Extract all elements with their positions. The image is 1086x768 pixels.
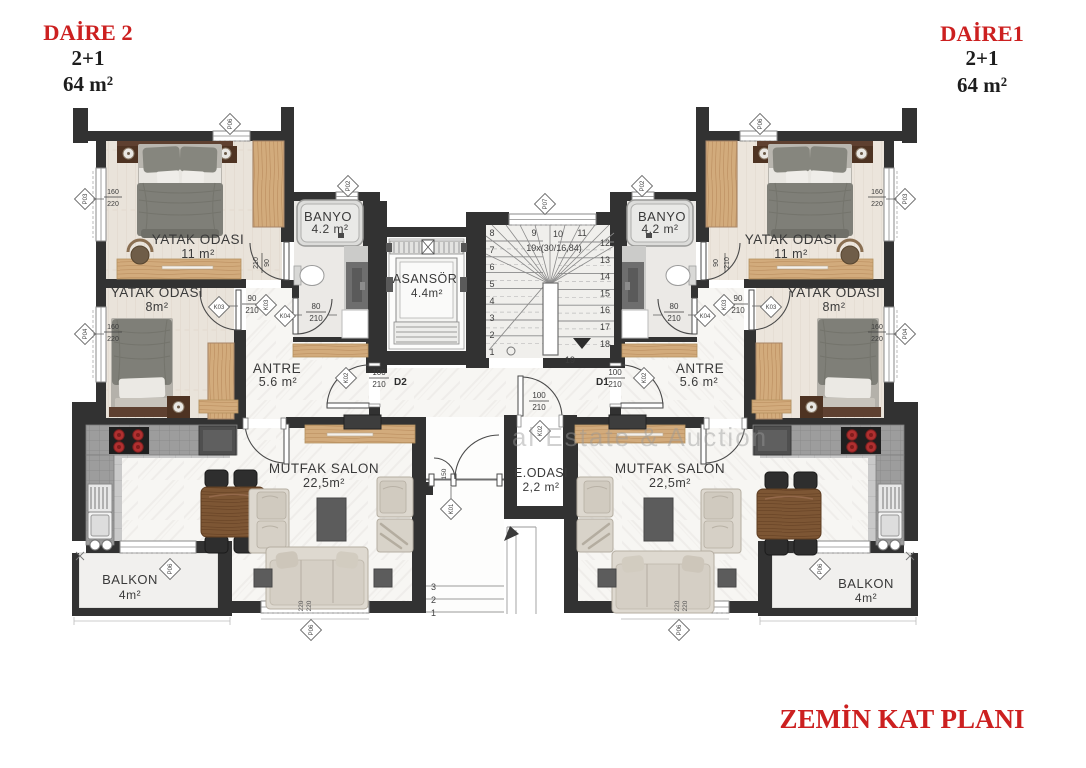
- svg-text:P06: P06: [168, 563, 174, 574]
- svg-text:90: 90: [264, 259, 271, 267]
- svg-text:ASANSÖR: ASANSÖR: [393, 272, 458, 286]
- svg-text:160: 160: [107, 189, 119, 196]
- svg-text:210: 210: [667, 314, 681, 323]
- svg-text:160: 160: [871, 324, 883, 331]
- svg-text:210: 210: [372, 380, 386, 389]
- svg-text:90: 90: [713, 259, 720, 267]
- svg-text:220: 220: [306, 600, 313, 611]
- svg-text:K03: K03: [264, 299, 270, 310]
- svg-text:210: 210: [245, 306, 259, 315]
- svg-text:D2: D2: [394, 377, 407, 388]
- svg-text:YATAK ODASI: YATAK ODASI: [745, 232, 838, 247]
- svg-text:6: 6: [489, 262, 494, 272]
- svg-text:160: 160: [107, 324, 119, 331]
- svg-text:22,5m²: 22,5m²: [649, 476, 691, 490]
- svg-text:8m²: 8m²: [145, 300, 168, 314]
- svg-text:P04: P04: [903, 328, 909, 339]
- svg-text:4: 4: [489, 296, 494, 306]
- svg-text:K03: K03: [766, 305, 777, 311]
- svg-text:210: 210: [532, 403, 546, 412]
- svg-text:ZEMİN KAT PLANI: ZEMİN KAT PLANI: [779, 704, 1024, 734]
- svg-text:13: 13: [600, 255, 610, 265]
- svg-text:P06: P06: [677, 624, 683, 635]
- svg-text:P03: P03: [903, 193, 909, 204]
- svg-text:P07: P07: [543, 198, 549, 209]
- svg-text:YATAK ODASI: YATAK ODASI: [111, 285, 204, 300]
- svg-text:7: 7: [489, 245, 494, 255]
- svg-text:5.6 m²: 5.6 m²: [259, 375, 297, 389]
- svg-text:2,2 m²: 2,2 m²: [522, 480, 559, 494]
- svg-text:P04: P04: [83, 328, 89, 339]
- svg-text:K02: K02: [642, 372, 648, 383]
- svg-text:P06: P06: [309, 624, 315, 635]
- svg-text:5.6 m²: 5.6 m²: [680, 375, 718, 389]
- svg-text:22,5m²: 22,5m²: [303, 476, 345, 490]
- svg-text:220: 220: [682, 600, 689, 611]
- svg-text:DAİRE 2: DAİRE 2: [43, 20, 132, 45]
- svg-text:80: 80: [312, 302, 321, 311]
- svg-text:K03: K03: [722, 299, 728, 310]
- svg-text:10: 10: [553, 229, 563, 239]
- svg-text:220: 220: [871, 201, 883, 208]
- svg-text:100: 100: [532, 391, 546, 400]
- svg-text:2+1: 2+1: [72, 46, 105, 70]
- svg-text:1: 1: [431, 608, 436, 618]
- svg-text:15: 15: [600, 288, 610, 298]
- svg-text:P06: P06: [818, 563, 824, 574]
- svg-text:19x(30/16,84): 19x(30/16,84): [526, 243, 582, 253]
- svg-text:BALKON: BALKON: [838, 576, 894, 591]
- svg-text:220: 220: [107, 201, 119, 208]
- svg-text:16: 16: [600, 305, 610, 315]
- svg-text:80: 80: [670, 302, 679, 311]
- svg-text:2: 2: [431, 595, 436, 605]
- svg-text:YATAK ODASI: YATAK ODASI: [788, 285, 881, 300]
- svg-text:4.2 m²: 4.2 m²: [311, 222, 348, 236]
- svg-text:90: 90: [734, 294, 743, 303]
- svg-text:9: 9: [531, 228, 536, 238]
- svg-text:100: 100: [372, 368, 386, 377]
- svg-text:4.4m²: 4.4m²: [411, 288, 443, 300]
- svg-text:3: 3: [431, 582, 436, 592]
- svg-text:5: 5: [489, 279, 494, 289]
- svg-text:11 m²: 11 m²: [774, 247, 808, 261]
- svg-text:K02: K02: [344, 372, 350, 383]
- svg-text:3: 3: [489, 313, 494, 323]
- svg-text:P06: P06: [228, 118, 234, 129]
- svg-text:YATAK ODASI: YATAK ODASI: [152, 232, 245, 247]
- svg-text:2: 2: [489, 330, 494, 340]
- svg-text:4m²: 4m²: [119, 588, 141, 602]
- svg-text:19: 19: [565, 355, 575, 365]
- svg-text:MUTFAK SALON: MUTFAK SALON: [615, 461, 725, 476]
- svg-text:210: 210: [253, 257, 260, 269]
- svg-text:220: 220: [107, 336, 119, 343]
- svg-text:E.ODASI: E.ODASI: [514, 466, 568, 480]
- svg-text:11: 11: [577, 228, 586, 238]
- svg-text:ANTRE: ANTRE: [676, 361, 724, 376]
- svg-text:64 m²: 64 m²: [957, 73, 1007, 97]
- svg-text:K04: K04: [700, 314, 711, 320]
- svg-text:220: 220: [674, 600, 681, 611]
- svg-text:210: 210: [731, 306, 745, 315]
- svg-text:11 m²: 11 m²: [181, 247, 215, 261]
- svg-text:ANTRE: ANTRE: [253, 361, 301, 376]
- svg-text:K04: K04: [280, 314, 291, 320]
- svg-text:P06: P06: [758, 118, 764, 129]
- svg-text:K01: K01: [449, 503, 455, 514]
- svg-text:210: 210: [608, 380, 622, 389]
- svg-text:P03: P03: [83, 193, 89, 204]
- svg-text:4.2 m²: 4.2 m²: [641, 222, 678, 236]
- svg-text:220: 220: [298, 600, 305, 611]
- svg-text:D1: D1: [596, 377, 609, 388]
- svg-text:14: 14: [600, 272, 610, 282]
- svg-text:100: 100: [608, 368, 622, 377]
- svg-text:P02: P02: [346, 180, 352, 191]
- svg-text:12: 12: [600, 238, 610, 248]
- svg-text:210: 210: [309, 314, 323, 323]
- svg-text:1: 1: [489, 347, 494, 357]
- svg-text:160: 160: [871, 189, 883, 196]
- svg-text:BALKON: BALKON: [102, 572, 158, 587]
- svg-text:8: 8: [489, 228, 494, 238]
- svg-text:MUTFAK SALON: MUTFAK SALON: [269, 461, 379, 476]
- svg-text:220: 220: [871, 336, 883, 343]
- svg-text:4m²: 4m²: [855, 591, 877, 605]
- svg-text:150: 150: [441, 468, 448, 479]
- svg-text:DAİRE1: DAİRE1: [940, 21, 1024, 46]
- svg-text:2+1: 2+1: [966, 46, 999, 70]
- svg-text:K03: K03: [214, 305, 225, 311]
- svg-text:8m²: 8m²: [822, 300, 845, 314]
- svg-text:17: 17: [600, 322, 610, 332]
- svg-text:64 m²: 64 m²: [63, 72, 113, 96]
- svg-text:90: 90: [248, 294, 257, 303]
- svg-text:18: 18: [600, 339, 610, 349]
- svg-text:P02: P02: [640, 180, 646, 191]
- svg-text:al Estate & Auction: al Estate & Auction: [512, 422, 768, 452]
